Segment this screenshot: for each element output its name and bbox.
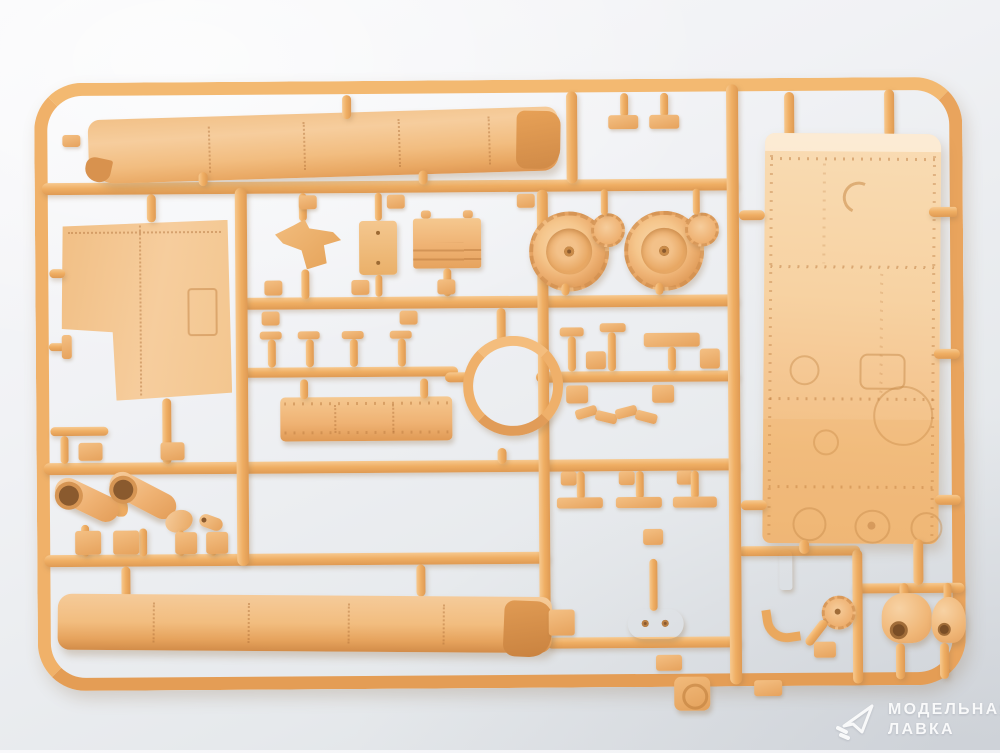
embossed-ring-mark <box>682 684 708 710</box>
watermark-line1: МОДЕЛЬНАЯ <box>888 700 1000 720</box>
hatch-dome-part <box>882 593 932 643</box>
riveted-beam-part <box>280 396 452 441</box>
hole-detail <box>642 620 649 627</box>
sprue-gate <box>619 471 635 485</box>
sprue-gate <box>463 210 473 218</box>
hub-detail <box>867 522 875 530</box>
rivet-seam <box>284 430 448 434</box>
sprue-stub <box>49 269 65 278</box>
hatch-detail <box>859 354 905 390</box>
sprue-stub <box>420 379 428 399</box>
hub-detail <box>659 246 669 256</box>
sprue-stub <box>660 93 668 117</box>
sprue-stub <box>896 643 905 679</box>
turret-ring-part <box>463 336 564 437</box>
rivet-seam <box>822 163 826 263</box>
sprue-stub <box>350 339 358 367</box>
sprue-stub <box>577 471 585 499</box>
watermark-text: МОДЕЛЬНАЯ ЛАВКА <box>888 700 1000 739</box>
sprue-gate <box>566 385 588 403</box>
sprue-stub <box>342 95 351 119</box>
rivet-seam <box>153 602 155 642</box>
sprue-gate <box>264 281 282 296</box>
sprue-stub <box>636 471 644 499</box>
sprue-gate <box>700 348 720 368</box>
panel-connector <box>741 500 767 510</box>
hub-detail <box>835 609 841 615</box>
sprue-stub <box>375 193 382 221</box>
sprue-gate <box>549 609 575 635</box>
pedestal-part <box>673 496 717 507</box>
small-pin-part <box>62 335 72 359</box>
rivet-seam <box>284 401 448 405</box>
sprue-stub <box>601 189 608 215</box>
pin-part <box>779 550 792 590</box>
hub-detail <box>564 246 574 256</box>
rivet-seam <box>303 122 306 170</box>
sprue-stub <box>300 379 308 399</box>
sprue-stub <box>620 93 628 117</box>
sprue-stub <box>693 189 700 215</box>
sprue-gate <box>75 531 101 555</box>
rod-part <box>50 427 108 436</box>
sprue-stub <box>139 528 147 556</box>
panel-connector <box>934 349 960 359</box>
ribbed-box-part <box>413 218 481 268</box>
hull-side-panel-part <box>762 133 941 544</box>
runner <box>243 366 458 378</box>
t-post-part <box>600 323 626 332</box>
sprue-stub <box>498 448 507 464</box>
t-post-part <box>390 331 412 339</box>
t-post-part <box>560 327 584 336</box>
rivet-seam <box>334 405 336 433</box>
sprue-stub <box>913 539 923 585</box>
sprue-gate <box>517 194 535 208</box>
sprue-stub <box>940 643 949 679</box>
rivet-seam <box>68 231 221 234</box>
sprue-gate <box>754 680 782 696</box>
sprue-gate <box>175 532 197 554</box>
circle-detail <box>854 510 890 544</box>
hole-detail <box>662 620 669 627</box>
sprue-stub <box>60 436 68 464</box>
sprue-stub <box>568 336 576 371</box>
sprue-gate <box>62 135 80 147</box>
sprue-stub <box>147 194 156 222</box>
panel-connector <box>935 495 961 505</box>
hatch-dome-part <box>932 597 966 643</box>
sprue-gate <box>586 351 606 369</box>
sprue-stub <box>561 284 569 296</box>
sprue-id-tab <box>674 677 710 711</box>
sprue-gate <box>299 195 317 209</box>
fender-end-curl <box>516 111 561 170</box>
paper-plane-icon <box>834 698 878 742</box>
sprue-stub <box>301 269 309 299</box>
rivet-seam <box>443 604 445 644</box>
rivet-seam <box>392 405 394 433</box>
panel-connector <box>739 210 765 220</box>
fender-end-curl <box>503 600 553 658</box>
sprue-stub <box>668 347 676 371</box>
hole-detail <box>201 517 207 523</box>
sprue-stub <box>419 171 428 185</box>
sprue-gate <box>160 442 184 460</box>
sprue-gate <box>656 655 682 671</box>
runner <box>566 91 578 183</box>
sprue-gate <box>206 532 228 554</box>
circle-detail <box>789 355 819 385</box>
sprue-gate <box>437 279 455 294</box>
sprue-gate <box>113 531 139 555</box>
t-post-part <box>342 331 364 339</box>
sprue-stub <box>884 89 894 137</box>
hole-detail <box>376 261 380 265</box>
sprue-stub <box>398 339 406 367</box>
sprue-gate <box>421 210 431 218</box>
t-post-part <box>298 331 320 339</box>
t-hanger-part <box>649 115 679 129</box>
rivet-seam <box>398 119 401 167</box>
watermark: МОДЕЛЬНАЯ ЛАВКА <box>834 698 1000 742</box>
opening-detail <box>890 621 908 639</box>
rivet-seam <box>488 116 491 164</box>
sprue-gate <box>643 529 663 545</box>
bottom-fender-part <box>58 594 552 653</box>
sprue-gate <box>400 311 418 325</box>
rivet-seam <box>348 604 350 644</box>
sprue-stub <box>691 471 699 499</box>
pedestal-part <box>557 497 603 508</box>
sprue-stub <box>416 565 425 597</box>
sprue <box>0 0 1000 753</box>
sprue-gate <box>78 443 102 461</box>
base-plate-part <box>628 609 684 639</box>
rivet-seam <box>208 127 211 173</box>
flat-bar-part <box>644 333 700 347</box>
sprue-gate <box>387 195 405 209</box>
beveled-edge <box>765 133 941 152</box>
hole-detail <box>376 231 380 235</box>
sprue-stub <box>649 559 657 611</box>
access-panel-detail <box>187 288 217 336</box>
t-hanger-part <box>608 115 638 129</box>
photo-model-kit-sprue: { "watermark": { "line1": "МОДЕЛЬНАЯ", "… <box>0 0 1000 750</box>
rib-detail <box>413 242 481 264</box>
idler-gear-part <box>591 213 625 247</box>
sprue-stub <box>268 340 276 368</box>
panel-connector <box>929 207 957 217</box>
sprue-gate <box>652 385 674 403</box>
t-post-part <box>260 332 282 340</box>
rivet-seam <box>139 226 142 395</box>
opening-detail <box>938 623 951 636</box>
sprue-stub <box>799 540 809 554</box>
watermark-line2: ЛАВКА <box>888 720 1000 740</box>
circle-detail <box>792 507 826 541</box>
sprue-stub <box>306 339 314 367</box>
pedestal-part <box>616 497 662 508</box>
sprue-gate <box>814 642 836 658</box>
sprue-gate <box>561 471 577 485</box>
rivet-seam <box>771 157 935 161</box>
sprue-stub <box>375 275 382 297</box>
sprue-stub <box>608 332 616 371</box>
pivot-plate-part <box>359 221 397 275</box>
runner <box>536 370 739 382</box>
rivet-seam <box>248 603 250 643</box>
sprue-stub <box>655 283 663 295</box>
crescent-detail <box>838 177 879 218</box>
sprue-gate <box>351 280 369 295</box>
sprue-gate <box>262 312 280 326</box>
sprue-stub <box>784 92 794 138</box>
rivet-seam <box>770 265 934 269</box>
sprue-stub <box>199 172 208 186</box>
idler-gear-part <box>685 212 719 246</box>
